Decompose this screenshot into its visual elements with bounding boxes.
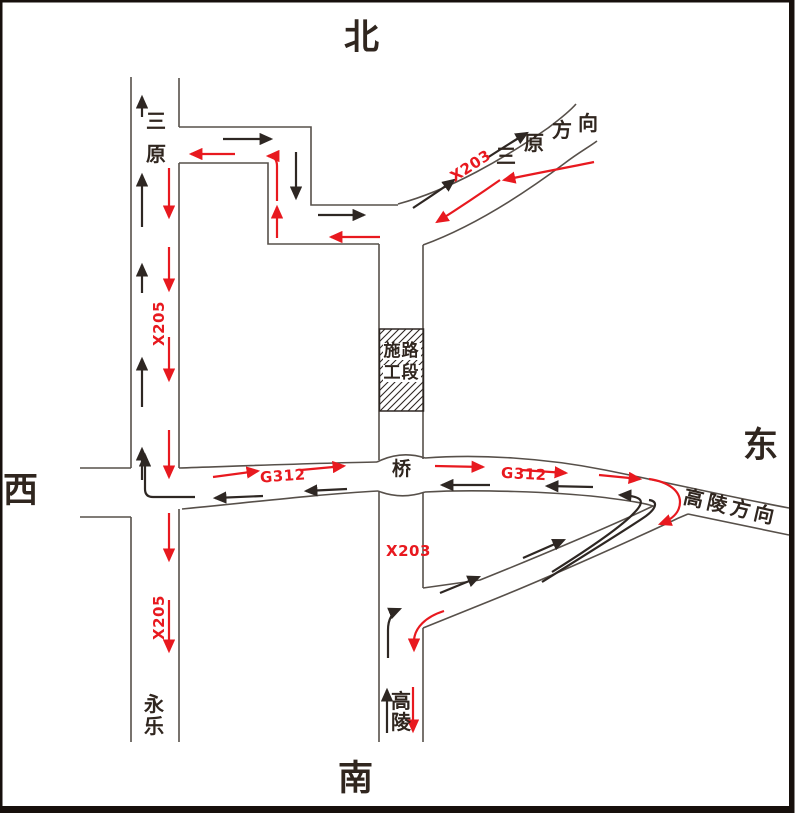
construction-zone-label: 施路 工段 [381,343,422,382]
detour-diagram-canvas: 北 南 东 西 三 原 永 乐 高 陵 桥 三 原 方 向 高陵方向 施路 工段… [0,0,800,813]
sanyuan-direction-char: 方 [552,120,572,140]
place-sanyuan: 三 原 [146,111,166,164]
place-gaoling-char: 高 [391,691,411,711]
route-g312-label-east: G312 [501,466,547,483]
compass-east: 东 [743,429,778,464]
compass-west: 西 [3,474,38,509]
road-x203-south [379,492,688,742]
sanyuan-direction-char: 向 [578,113,598,133]
construction-zone-row: 施路 [383,343,421,360]
place-yongle-char: 乐 [144,716,164,736]
place-sanyuan-char: 原 [146,144,166,164]
place-gaoling-char: 陵 [391,712,411,732]
place-gaoling: 高 陵 [391,691,411,732]
sanyuan-direction-char: 原 [524,133,544,153]
through-route-arrows-black [142,97,655,733]
construction-zone-row: 工段 [383,365,421,382]
place-sanyuan-char: 三 [146,111,166,131]
compass-south: 南 [338,762,373,797]
sanyuan-direction-char: 三 [496,146,516,166]
bridge-label: 桥 [392,460,411,479]
place-yongle: 永 乐 [144,694,164,736]
route-x203-label-south: X203 [386,544,431,559]
route-x205-label-north: X205 [152,301,167,346]
detour-route-arrows-red [169,154,680,731]
route-x205-label-south: X205 [152,595,167,640]
place-yongle-char: 永 [144,694,164,714]
road-x205 [131,77,179,742]
compass-north: 北 [344,21,379,56]
road-detour-zigzag [179,127,398,244]
road-west-stub [80,468,131,517]
route-g312-label-west: G312 [260,467,307,485]
